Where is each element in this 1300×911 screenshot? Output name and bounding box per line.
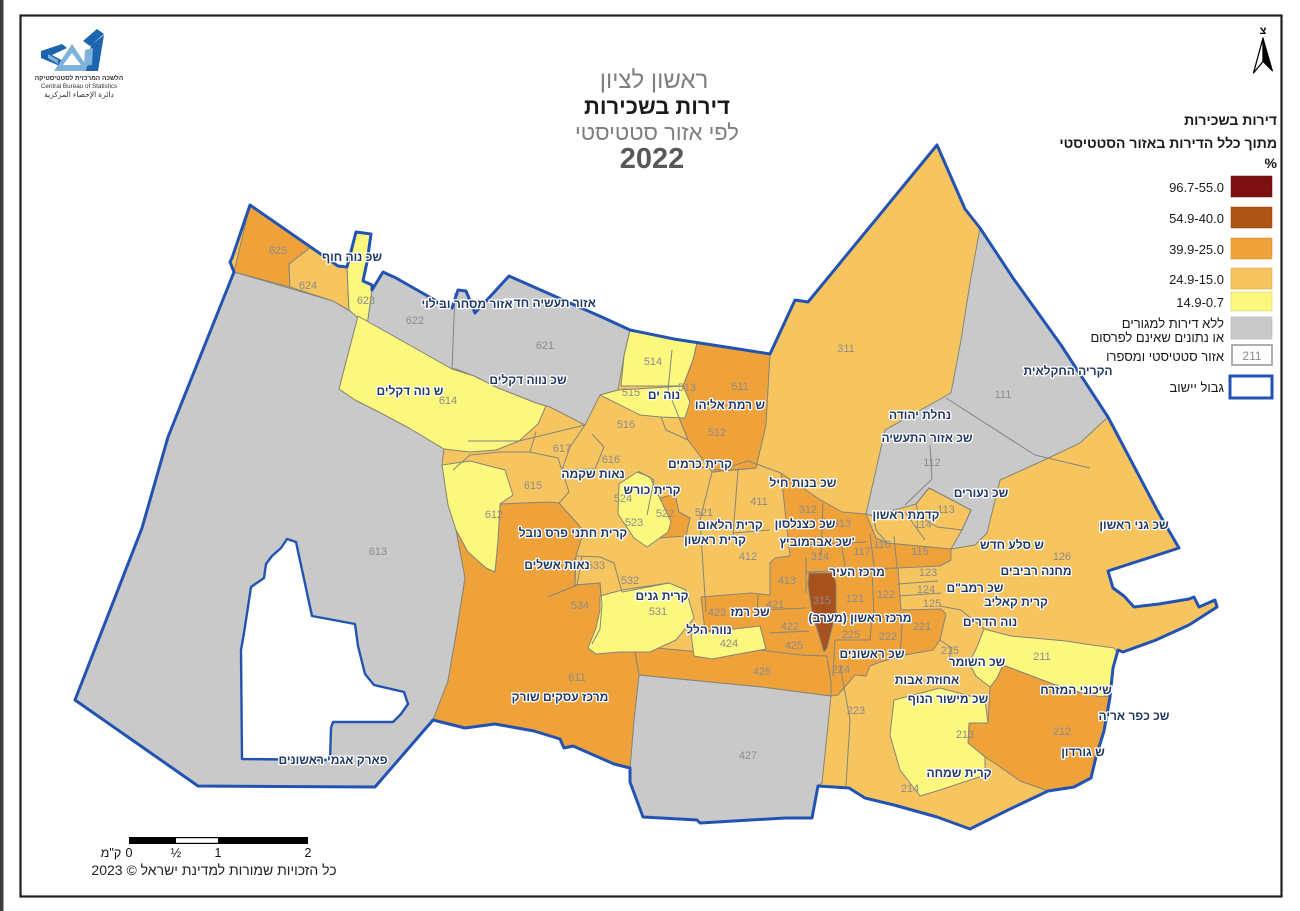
svg-text:הקריה החקלאית: הקריה החקלאית [1023,364,1112,378]
svg-text:ק"מ: ק"מ [101,846,121,860]
svg-text:קרית קאליב: קרית קאליב [984,595,1048,609]
svg-text:311: 311 [837,343,855,355]
svg-text:617: 617 [553,443,571,455]
svg-text:313: 313 [833,518,851,530]
svg-text:½: ½ [171,846,182,860]
svg-text:221: 221 [913,621,931,633]
svg-text:שכ גני ראשון: שכ גני ראשון [1099,518,1169,532]
svg-text:613: 613 [369,546,387,558]
svg-text:115: 115 [911,546,929,558]
svg-text:שכ השומר: שכ השומר [949,655,1006,669]
svg-text:הלשכה המרכזית לסטטיסטיקה: הלשכה המרכזית לסטטיסטיקה [35,74,124,82]
svg-text:2: 2 [305,846,312,860]
svg-text:522: 522 [656,508,674,520]
svg-text:ש סלע חדש: ש סלע חדש [980,538,1044,552]
svg-text:צ: צ [1260,25,1267,37]
svg-text:314: 314 [811,551,829,563]
svg-text:624: 624 [299,280,317,292]
svg-text:123: 123 [919,567,937,579]
svg-text:נאות אשלים: נאות אשלים [524,558,589,572]
svg-text:411: 411 [750,496,768,508]
svg-text:2022: 2022 [620,143,685,175]
svg-text:קרית כרמים: קרית כרמים [668,457,732,471]
svg-text:קרית חתני פרס נובל: קרית חתני פרס נובל [519,526,628,540]
svg-text:שכ רמב"ם: שכ רמב"ם [947,581,1004,595]
svg-text:מרכז העיר: מרכז העיר [829,565,885,579]
svg-text:511: 511 [731,381,749,393]
svg-text:אזור סטטיסטי ומספרו: אזור סטטיסטי ומספרו [1106,349,1224,364]
svg-text:625: 625 [269,245,287,257]
svg-text:413: 413 [778,575,796,587]
svg-text:נווה הלל: נווה הלל [686,623,732,637]
svg-text:223: 223 [847,705,865,717]
svg-text:נחלת יהודה: נחלת יהודה [889,408,951,422]
svg-text:לפי אזור סטטיסטי: לפי אזור סטטיסטי [575,120,739,145]
svg-text:513: 513 [678,382,696,394]
svg-text:אחוזת אבות: אחוזת אבות [895,673,959,687]
svg-text:124: 124 [917,584,935,596]
svg-text:גבול יישוב: גבול יישוב [1169,380,1224,395]
svg-text:נאות שקמה: נאות שקמה [561,467,624,481]
svg-text:דירות בשכירות: דירות בשכירות [584,94,730,119]
svg-text:621: 621 [536,340,554,352]
svg-text:קרית שמחה: קרית שמחה [927,766,992,780]
svg-text:422: 422 [781,621,799,633]
svg-text:دائرة الإحصاء المركزية: دائرة الإحصاء المركزية [44,90,114,99]
svg-text:424: 424 [720,638,738,650]
svg-text:532: 532 [621,575,639,587]
svg-text:שכ כפר אריה: שכ כפר אריה [1099,709,1170,723]
svg-text:ש רמת אליהו: ש רמת אליהו [695,398,765,412]
svg-text:מחנה רביבים: מחנה רביבים [1000,564,1071,578]
svg-text:111: 111 [995,389,1012,401]
svg-text:315: 315 [813,595,831,607]
svg-text:611: 611 [568,672,586,684]
svg-text:211: 211 [1242,349,1261,363]
svg-text:שכ בנות חיל: שכ בנות חיל [770,476,837,490]
svg-text:קדמת ראשון: קדמת ראשון [873,508,940,522]
svg-text:425: 425 [785,640,803,652]
svg-text:96.7-55.0: 96.7-55.0 [1169,180,1224,195]
svg-text:423: 423 [708,607,726,619]
svg-text:שכ נוה חוף: שכ נוה חוף [322,250,382,264]
svg-text:623: 623 [357,295,375,307]
svg-text:224: 224 [832,664,850,676]
svg-text:39.9-25.0: 39.9-25.0 [1169,242,1224,257]
svg-text:שכ ראשונים: שכ ראשונים [840,647,905,661]
svg-text:קרית ראשון: קרית ראשון [684,533,746,547]
svg-text:125: 125 [923,598,941,610]
svg-text:117: 117 [853,546,871,558]
svg-text:612: 612 [485,509,503,521]
svg-text:622: 622 [406,315,424,327]
svg-text:523: 523 [625,517,643,529]
svg-text:426: 426 [753,666,771,678]
svg-text:קרית גנים: קרית גנים [635,589,688,603]
svg-text:דירות בשכירות: דירות בשכירות [1184,112,1277,128]
svg-text:515: 515 [622,387,640,399]
svg-text:מתוך כלל הדירות באזור הסטטיסטי: מתוך כלל הדירות באזור הסטטיסטי [1059,135,1277,151]
svg-text:אזור תעשיה חדש: אזור תעשיה חדש [504,296,596,310]
svg-text:ללא דירות למגורים: ללא דירות למגורים [1122,316,1224,331]
svg-text:24.9-15.0: 24.9-15.0 [1169,272,1224,287]
svg-text:211: 211 [1033,651,1051,663]
svg-text:ש נוה דקלים: ש נוה דקלים [377,384,444,398]
svg-text:קרית כורש: קרית כורש [624,483,681,497]
svg-text:512: 512 [708,427,726,439]
svg-text:427: 427 [739,750,757,762]
svg-text:ש גורדון: ש גורדון [1061,745,1105,759]
svg-text:שכ אזור התעשיה: שכ אזור התעשיה [881,431,972,445]
svg-text:112: 112 [923,457,941,469]
svg-text:514: 514 [644,356,662,368]
svg-text:113: 113 [937,504,955,516]
svg-text:214: 214 [901,783,919,795]
svg-text:534: 534 [571,600,589,612]
svg-text:312: 312 [799,504,817,516]
svg-text:121: 121 [846,593,864,605]
svg-text:Central Bureau of Statistics: Central Bureau of Statistics [41,83,117,90]
svg-text:מרכז עסקים שורק: מרכז עסקים שורק [512,690,609,704]
svg-text:222: 222 [879,631,897,643]
svg-text:1: 1 [215,846,222,860]
svg-text:213: 213 [956,729,974,741]
svg-text:כל הזכויות שמורות למדינת ישראל: כל הזכויות שמורות למדינת ישראל © 2023 [91,862,336,878]
svg-text:או נתונים שאינם לפרסום: או נתונים שאינם לפרסום [1090,330,1224,345]
svg-text:516: 516 [617,419,635,431]
svg-text:412: 412 [739,551,757,563]
svg-text:פארק אגמי ראשונים: פארק אגמי ראשונים [278,753,387,767]
svg-text:615: 615 [524,480,542,492]
svg-text:616: 616 [602,454,620,466]
svg-text:212: 212 [1053,726,1071,738]
svg-text:0: 0 [126,846,133,860]
svg-text:531: 531 [649,606,667,618]
svg-text:54.9-40.0: 54.9-40.0 [1169,211,1224,226]
svg-text:14.9-0.7: 14.9-0.7 [1176,295,1224,310]
svg-text:שכ אברמוביץ': שכ אברמוביץ' [779,535,854,549]
svg-text:116: 116 [873,539,891,551]
svg-text:שכ נעורים: שכ נעורים [954,486,1009,500]
svg-text:נוה הדרים: נוה הדרים [963,615,1017,629]
svg-text:שכ מישור הנוף: שכ מישור הנוף [908,692,989,706]
svg-text:שכ נווה דקלים: שכ נווה דקלים [489,373,567,387]
svg-text:122: 122 [877,589,895,601]
svg-text:שכ כצנלסון: שכ כצנלסון [775,517,836,531]
svg-text:שיכוני המזרח: שיכוני המזרח [1040,683,1112,697]
svg-text:מרכז ראשון (מערב): מרכז ראשון (מערב) [809,611,912,625]
svg-text:126: 126 [1053,551,1071,563]
svg-text:שכ רמז: שכ רמז [730,605,770,619]
svg-text:קרית הלאום: קרית הלאום [697,518,763,532]
svg-text:225: 225 [842,629,860,641]
svg-text:ראשון לציון: ראשון לציון [600,67,709,94]
svg-text:אזור מסחר ובילוי: אזור מסחר ובילוי [421,297,512,311]
svg-text:נוה ים: נוה ים [648,388,680,402]
svg-text:%: % [1265,155,1278,171]
